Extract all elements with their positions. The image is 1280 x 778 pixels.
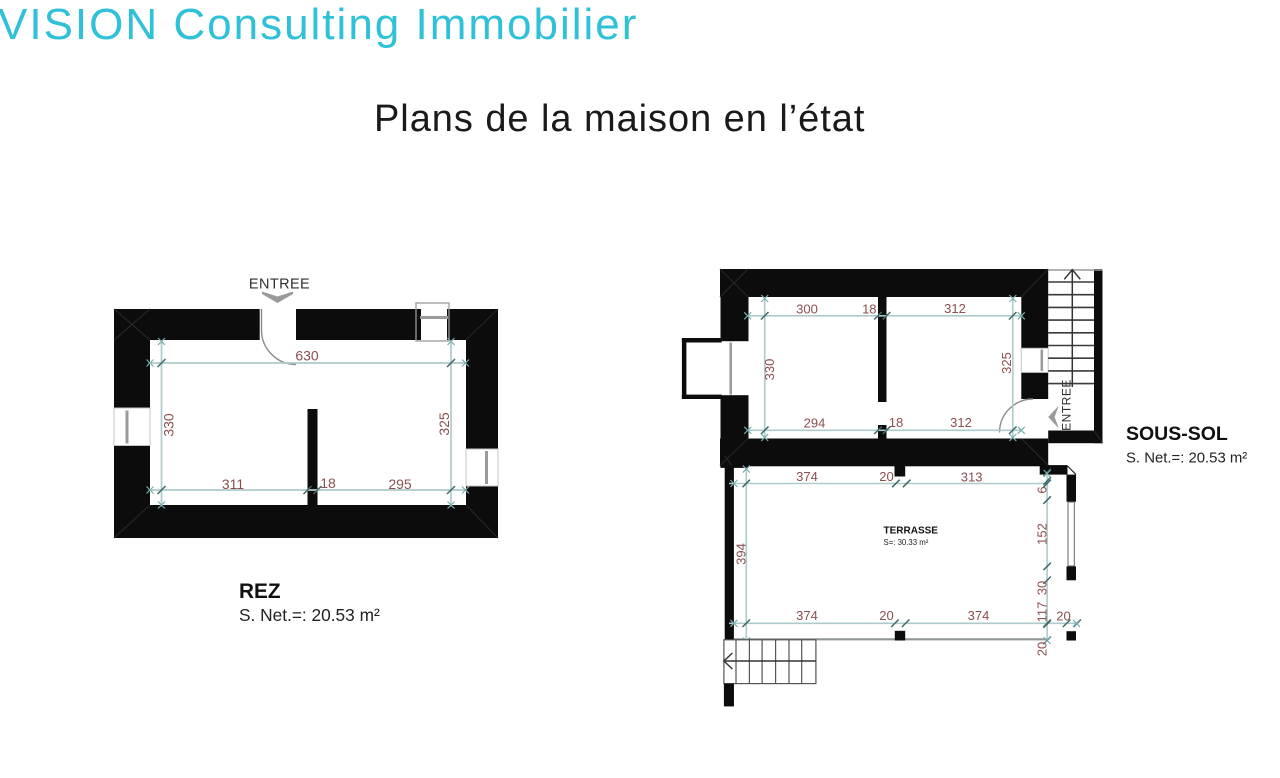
svg-text:S=: 30.33 m²: S=: 30.33 m² [884, 538, 929, 547]
svg-text:152: 152 [1034, 523, 1049, 545]
svg-text:20: 20 [879, 469, 893, 484]
svg-text:20: 20 [1056, 609, 1070, 624]
svg-text:374: 374 [968, 608, 990, 623]
svg-text:18: 18 [862, 302, 876, 317]
svg-text:S. Net.=: 20.53 m²: S. Net.=: 20.53 m² [1126, 451, 1247, 467]
svg-text:325: 325 [436, 412, 452, 436]
svg-text:TERRASSE: TERRASSE [884, 526, 939, 537]
svg-text:30: 30 [1034, 581, 1049, 595]
svg-text:330: 330 [762, 359, 777, 381]
svg-text:374: 374 [796, 608, 818, 623]
svg-text:ENTREE: ENTREE [1060, 379, 1074, 431]
svg-text:S. Net.=: 20.53 m²: S. Net.=: 20.53 m² [239, 605, 380, 625]
svg-text:374: 374 [796, 469, 818, 484]
svg-text:325: 325 [999, 352, 1014, 374]
svg-text:20: 20 [879, 608, 893, 623]
svg-text:394: 394 [734, 543, 749, 565]
svg-text:6: 6 [1034, 486, 1049, 493]
svg-text:SOUS-SOL: SOUS-SOL [1126, 423, 1228, 445]
svg-text:300: 300 [796, 302, 818, 317]
svg-text:294: 294 [804, 416, 826, 431]
svg-text:311: 311 [222, 476, 245, 492]
svg-text:ENTREE: ENTREE [249, 277, 310, 293]
svg-text:295: 295 [388, 476, 412, 492]
svg-text:312: 312 [950, 415, 972, 430]
svg-text:330: 330 [161, 413, 177, 437]
svg-text:18: 18 [889, 415, 903, 430]
svg-text:313: 313 [961, 470, 983, 485]
svg-text:630: 630 [295, 348, 319, 364]
svg-text:20: 20 [1034, 642, 1049, 656]
svg-text:312: 312 [944, 301, 966, 316]
svg-text:117: 117 [1034, 602, 1049, 623]
svg-text:REZ: REZ [239, 580, 281, 603]
svg-text:18: 18 [320, 475, 336, 491]
